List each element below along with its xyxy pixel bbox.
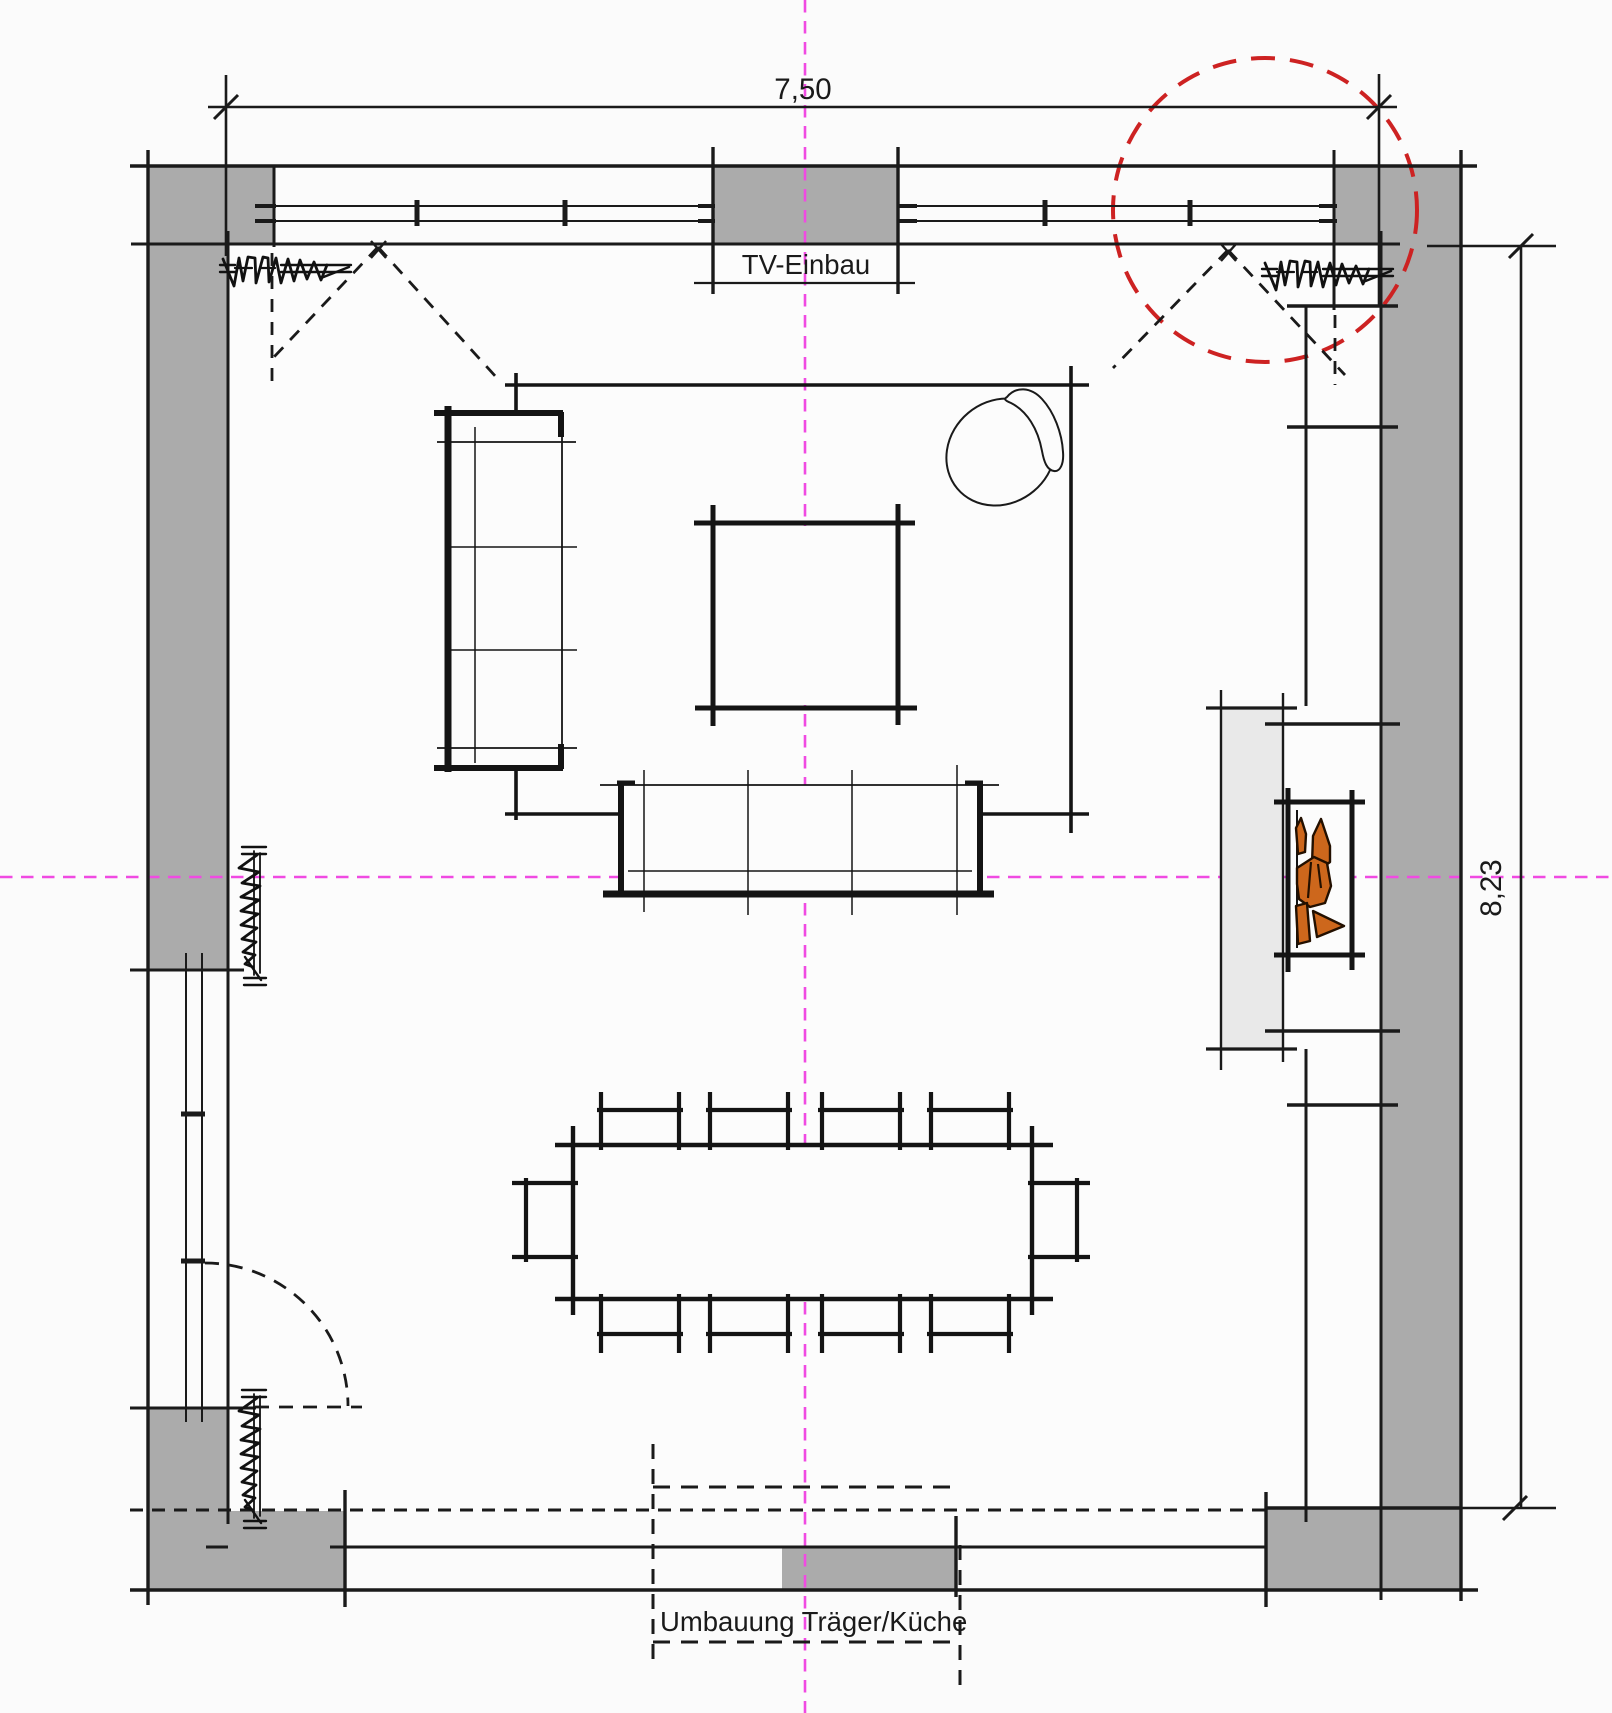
svg-text:8,23: 8,23 <box>1475 859 1508 916</box>
svg-text:Umbauung Träger/Küche: Umbauung Träger/Küche <box>660 1606 967 1637</box>
svg-text:TV-Einbau: TV-Einbau <box>742 249 870 280</box>
svg-text:7,50: 7,50 <box>774 73 831 106</box>
